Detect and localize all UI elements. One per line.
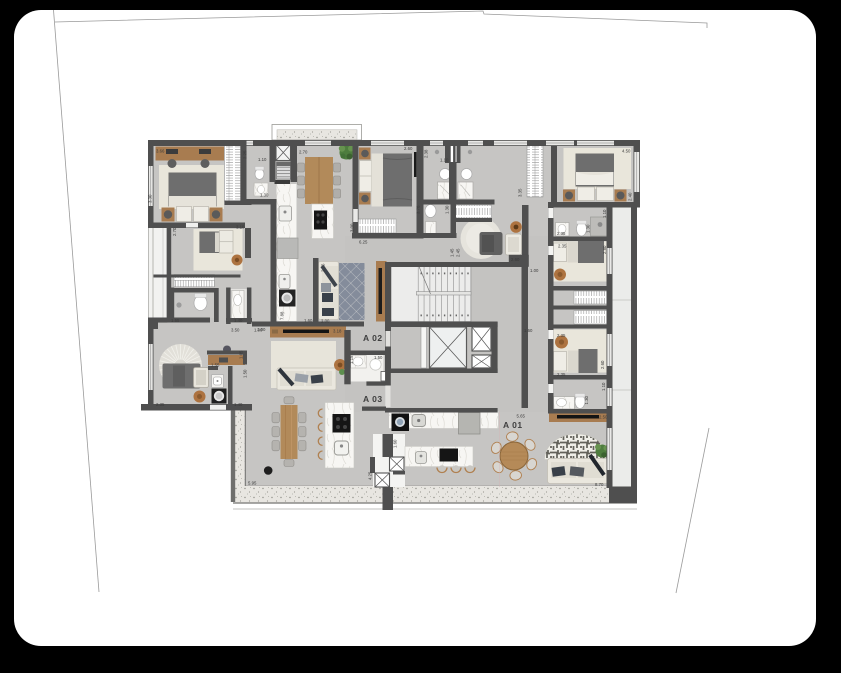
svg-text:1.15: 1.15 bbox=[349, 355, 354, 364]
svg-text:1.10: 1.10 bbox=[440, 158, 449, 163]
svg-text:2.50: 2.50 bbox=[599, 415, 608, 420]
svg-text:A 01: A 01 bbox=[503, 420, 523, 430]
svg-text:1.00: 1.00 bbox=[530, 268, 539, 273]
svg-text:6.25: 6.25 bbox=[359, 240, 368, 245]
svg-text:2.80: 2.80 bbox=[602, 245, 607, 254]
svg-text:1.10: 1.10 bbox=[601, 382, 606, 391]
svg-text:1.30: 1.30 bbox=[584, 396, 589, 405]
svg-text:1.00: 1.00 bbox=[257, 327, 266, 332]
svg-text:1.10: 1.10 bbox=[602, 209, 607, 218]
svg-text:3.10: 3.10 bbox=[236, 225, 245, 230]
svg-text:3.00: 3.00 bbox=[350, 223, 355, 232]
svg-text:3.30: 3.30 bbox=[148, 194, 153, 203]
svg-text:1.60: 1.60 bbox=[393, 439, 398, 448]
svg-text:7.88: 7.88 bbox=[280, 311, 285, 320]
svg-text:1.45: 1.45 bbox=[450, 248, 455, 257]
svg-text:1.55: 1.55 bbox=[171, 318, 180, 323]
svg-text:3.50: 3.50 bbox=[231, 328, 240, 333]
svg-text:3.66: 3.66 bbox=[156, 149, 165, 154]
svg-text:1.30: 1.30 bbox=[260, 193, 269, 198]
svg-text:5.95: 5.95 bbox=[248, 481, 257, 486]
svg-text:A 02: A 02 bbox=[363, 333, 383, 343]
svg-text:2.60: 2.60 bbox=[511, 257, 520, 262]
svg-text:1.40: 1.40 bbox=[234, 318, 243, 323]
svg-text:1.55: 1.55 bbox=[211, 363, 220, 368]
svg-text:1.30: 1.30 bbox=[586, 224, 591, 233]
svg-text:2.00: 2.00 bbox=[321, 319, 330, 324]
svg-text:2.60: 2.60 bbox=[404, 146, 413, 151]
svg-text:2.38: 2.38 bbox=[424, 149, 429, 158]
svg-text:2.70: 2.70 bbox=[299, 150, 308, 155]
svg-text:1.10: 1.10 bbox=[258, 157, 267, 162]
svg-text:3.18: 3.18 bbox=[333, 329, 342, 334]
svg-text:A 03: A 03 bbox=[363, 394, 383, 404]
svg-text:4.25: 4.25 bbox=[368, 471, 373, 480]
svg-text:4.50: 4.50 bbox=[622, 149, 631, 154]
svg-text:2.35: 2.35 bbox=[557, 372, 566, 377]
svg-text:3.76: 3.76 bbox=[416, 205, 421, 214]
svg-text:2.40: 2.40 bbox=[628, 192, 633, 201]
svg-text:1.50: 1.50 bbox=[243, 369, 248, 378]
svg-text:1.40: 1.40 bbox=[234, 402, 243, 407]
svg-text:1.05: 1.05 bbox=[239, 350, 244, 359]
svg-text:1.60: 1.60 bbox=[304, 318, 313, 323]
svg-text:5.65: 5.65 bbox=[517, 414, 526, 419]
svg-text:2.70: 2.70 bbox=[172, 227, 177, 236]
svg-text:2.35: 2.35 bbox=[558, 244, 567, 249]
svg-text:2.45: 2.45 bbox=[456, 248, 461, 257]
svg-text:2.35: 2.35 bbox=[156, 402, 165, 407]
svg-text:2.35: 2.35 bbox=[557, 333, 566, 338]
svg-text:2.25: 2.25 bbox=[243, 150, 248, 159]
svg-text:2.75: 2.75 bbox=[321, 263, 326, 272]
svg-text:8.70: 8.70 bbox=[595, 482, 604, 487]
svg-text:1.30: 1.30 bbox=[445, 205, 450, 214]
svg-text:2.35: 2.35 bbox=[557, 231, 566, 236]
svg-text:1.50: 1.50 bbox=[374, 355, 383, 360]
svg-text:1.60: 1.60 bbox=[524, 328, 533, 333]
svg-text:2.60: 2.60 bbox=[600, 360, 605, 369]
svg-text:3.35: 3.35 bbox=[518, 188, 523, 197]
